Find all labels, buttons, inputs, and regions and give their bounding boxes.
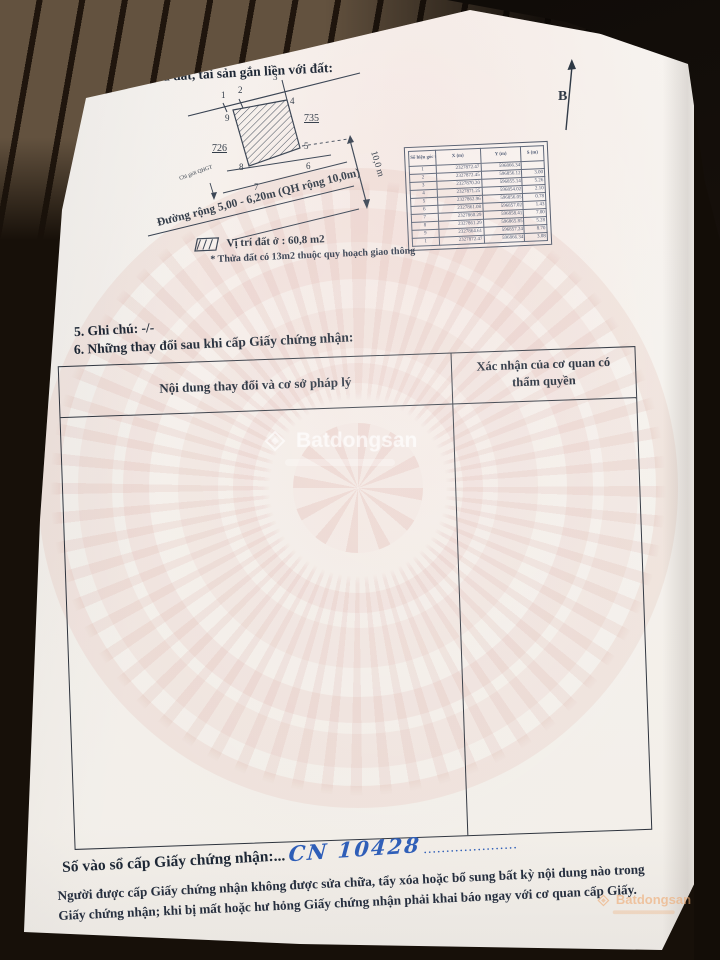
vertex-label: 6: [306, 161, 311, 171]
vertex-label: 1: [221, 90, 226, 100]
coord-cell: 596866.34: [484, 234, 525, 244]
coord-cell: 3.08: [525, 233, 548, 242]
coord-header: Số hiệu góc thửa: [408, 150, 435, 166]
parcel-735-label: 735: [304, 113, 319, 124]
coord-cell: 2327872.47: [439, 235, 484, 245]
coord-table-body: 12327872.47596866.3422327872.45596856.12…: [409, 161, 547, 247]
changes-confirm-header: Xác nhận của cơ quan có thẩm quyền: [451, 347, 636, 403]
hatch-swatch-icon: [193, 237, 220, 252]
planning-boundary-label: Chỉ giới QHGT: [179, 164, 214, 182]
vertex-label: 8: [239, 162, 244, 172]
coordinate-table: Số hiệu góc thửa X (m) Y (m) S (m) 12327…: [404, 141, 552, 251]
vertex-label: 4: [290, 96, 295, 106]
vertex-label: 5: [304, 141, 309, 151]
changes-table-body: [61, 398, 652, 849]
parcel-726-label: 726: [212, 143, 227, 154]
registry-label: Số vào sổ cấp Giấy chứng nhận:...: [62, 847, 286, 877]
section5-note: 5. Ghi chú: -/-: [74, 320, 155, 340]
width-dimension-label: 10,0 m: [368, 150, 385, 179]
photo-scene: 4: Sơ đồ thửa đất, tài sản gắn liền với …: [0, 0, 720, 960]
changes-table: Nội dung thay đổi và cơ sở pháp lý Xác n…: [58, 346, 653, 850]
changes-confirm-cell: [453, 398, 651, 835]
north-label: B: [558, 89, 567, 104]
certificate-paper: 4: Sơ đồ thửa đất, tài sản gắn liền với …: [0, 0, 720, 960]
vertex-label: 2: [238, 85, 243, 95]
certificate-content: 4: Sơ đồ thửa đất, tài sản gắn liền với …: [0, 0, 720, 960]
vertex-label: 3: [273, 72, 278, 82]
changes-content-cell: [61, 404, 468, 848]
north-arrow-icon: B: [545, 56, 589, 136]
legend-area-text: Vị trí đất ở : 60,8 m2: [226, 233, 324, 249]
coord-header: S (m): [521, 146, 544, 162]
vertex-label: 9: [225, 113, 230, 123]
vertex-label: 7: [254, 182, 259, 192]
coord-cell: 1: [412, 237, 439, 246]
dotted-line: .....................: [423, 837, 518, 858]
parcel-diagram: 10,0 m 1 2 3 4 5 6 7 8 9 726 735 Chỉ giớ…: [128, 52, 388, 257]
